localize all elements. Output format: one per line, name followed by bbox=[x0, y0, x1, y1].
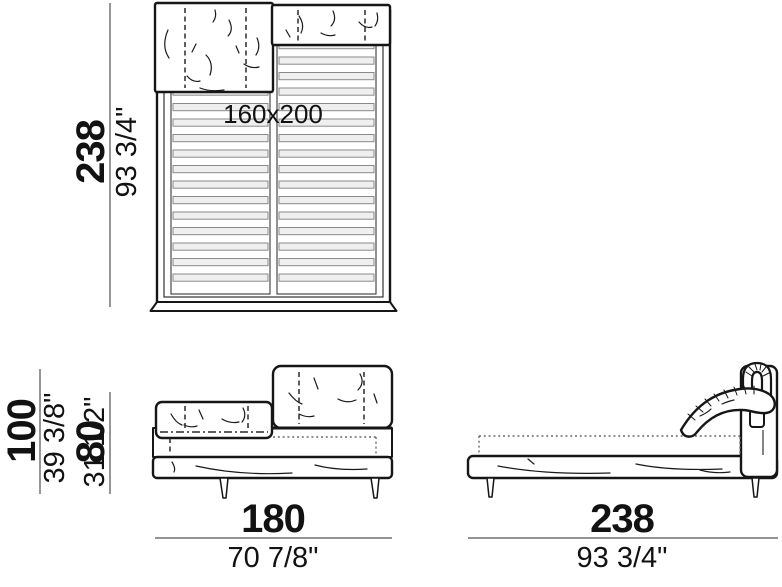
slat bbox=[173, 228, 268, 235]
slat bbox=[173, 212, 268, 219]
bed-base-front bbox=[153, 457, 392, 478]
slat bbox=[279, 88, 374, 95]
slat bbox=[279, 57, 374, 64]
mattress-size-label: 160x200 bbox=[173, 99, 373, 129]
slat bbox=[173, 135, 268, 142]
headboard-cushion-high bbox=[273, 366, 392, 428]
height-80-inches-label: 31 1/2" bbox=[78, 332, 112, 552]
slat bbox=[173, 274, 268, 281]
bed-leg bbox=[487, 478, 494, 497]
slat bbox=[279, 135, 374, 142]
frame-foot-rail bbox=[151, 302, 397, 311]
pillow-right bbox=[272, 5, 390, 45]
slat bbox=[279, 73, 374, 80]
bed-leg bbox=[371, 478, 379, 498]
length-238-cm-label: 238 bbox=[512, 497, 732, 541]
bed-dimension-diagram: 238 93 3/4" 160x200 100 39 3/8" 80 31 1/… bbox=[0, 0, 782, 587]
slat bbox=[279, 166, 374, 173]
length-238-inches-label: 93 3/4" bbox=[512, 541, 732, 575]
slat bbox=[279, 150, 374, 157]
bed-base-side bbox=[468, 456, 777, 478]
slat bbox=[173, 150, 268, 157]
height-100-inches-label: 39 3/8" bbox=[38, 328, 72, 548]
width-180-inches-label: 70 7/8" bbox=[163, 541, 383, 575]
top-length-cm-label: 238 bbox=[69, 42, 113, 262]
slat bbox=[173, 243, 268, 250]
top-length-inches-label: 93 3/4" bbox=[110, 42, 144, 262]
front-view-drawing bbox=[153, 366, 392, 498]
slat bbox=[279, 274, 374, 281]
slat bbox=[279, 181, 374, 188]
slat bbox=[279, 197, 374, 204]
slat bbox=[173, 197, 268, 204]
side-view-drawing bbox=[468, 363, 777, 497]
slat bbox=[279, 228, 374, 235]
slat bbox=[173, 181, 268, 188]
top-view-drawing bbox=[151, 3, 397, 311]
slats-right bbox=[279, 26, 374, 281]
slat bbox=[279, 259, 374, 266]
headboard-cushion-low bbox=[156, 402, 272, 438]
slat bbox=[279, 212, 374, 219]
slat bbox=[279, 243, 374, 250]
width-180-cm-label: 180 bbox=[163, 497, 383, 541]
bed-leg bbox=[220, 478, 228, 498]
slat bbox=[173, 259, 268, 266]
slat bbox=[173, 166, 268, 173]
bed-leg bbox=[752, 478, 759, 497]
pillow-left bbox=[155, 3, 273, 92]
